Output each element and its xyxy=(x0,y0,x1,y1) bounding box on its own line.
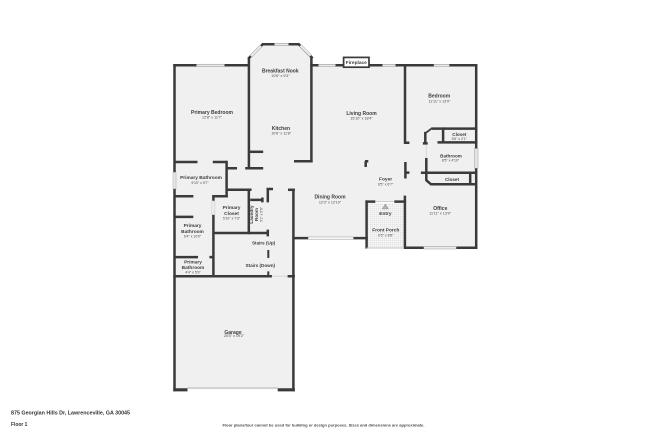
svg-text:15'10" x 18'4": 15'10" x 18'4" xyxy=(350,117,373,121)
svg-text:875 Georgian Hills Dr, Lawrenc: 875 Georgian Hills Dr, Lawrenceville, GA… xyxy=(11,411,131,417)
svg-text:Floor plans/tour cannot be use: Floor plans/tour cannot be used for buil… xyxy=(223,422,425,427)
svg-text:Primary: Primary xyxy=(184,259,202,265)
svg-text:Stairs (Down): Stairs (Down) xyxy=(245,263,275,268)
svg-text:20'5" x 19'2": 20'5" x 19'2" xyxy=(224,334,245,338)
svg-text:5'6" x 2'1": 5'6" x 2'1" xyxy=(452,137,468,141)
svg-text:8'5" x 4'10": 8'5" x 4'10" xyxy=(442,159,460,163)
svg-text:10'6" x 11'8": 10'6" x 11'8" xyxy=(271,132,292,136)
svg-text:Closet: Closet xyxy=(445,177,460,182)
svg-text:Entry: Entry xyxy=(379,211,392,217)
svg-text:11'11" x 13'0": 11'11" x 13'0" xyxy=(429,99,451,103)
svg-text:4'4" x 5'9": 4'4" x 5'9" xyxy=(185,270,201,274)
svg-text:9'10" x 5'7": 9'10" x 5'7" xyxy=(191,181,209,185)
svg-text:6'5" x 8'8": 6'5" x 8'8" xyxy=(378,234,394,238)
svg-text:Bathroom: Bathroom xyxy=(440,153,462,158)
svg-text:Room: Room xyxy=(254,208,259,221)
svg-text:Primary: Primary xyxy=(184,223,202,229)
svg-text:6'5" x 6'7": 6'5" x 6'7" xyxy=(378,182,394,186)
svg-text:11'11" x 13'9": 11'11" x 13'9" xyxy=(429,212,451,216)
svg-text:5'1" x 5'6": 5'1" x 5'6" xyxy=(259,206,263,222)
svg-text:Fireplace: Fireplace xyxy=(346,60,368,65)
svg-text:Primary: Primary xyxy=(223,205,241,211)
svg-text:Floor 1: Floor 1 xyxy=(11,422,28,428)
svg-text:5'10" x 7'3": 5'10" x 7'3" xyxy=(223,216,241,220)
svg-text:10'6" x 9'3": 10'6" x 9'3" xyxy=(271,74,290,78)
svg-text:12'8" x 11'7": 12'8" x 11'7" xyxy=(202,116,223,120)
svg-text:Stairs (Up): Stairs (Up) xyxy=(252,240,276,245)
svg-text:12'3" x 12'10": 12'3" x 12'10" xyxy=(319,200,342,204)
svg-text:6'4" x 10'0": 6'4" x 10'0" xyxy=(184,234,202,238)
